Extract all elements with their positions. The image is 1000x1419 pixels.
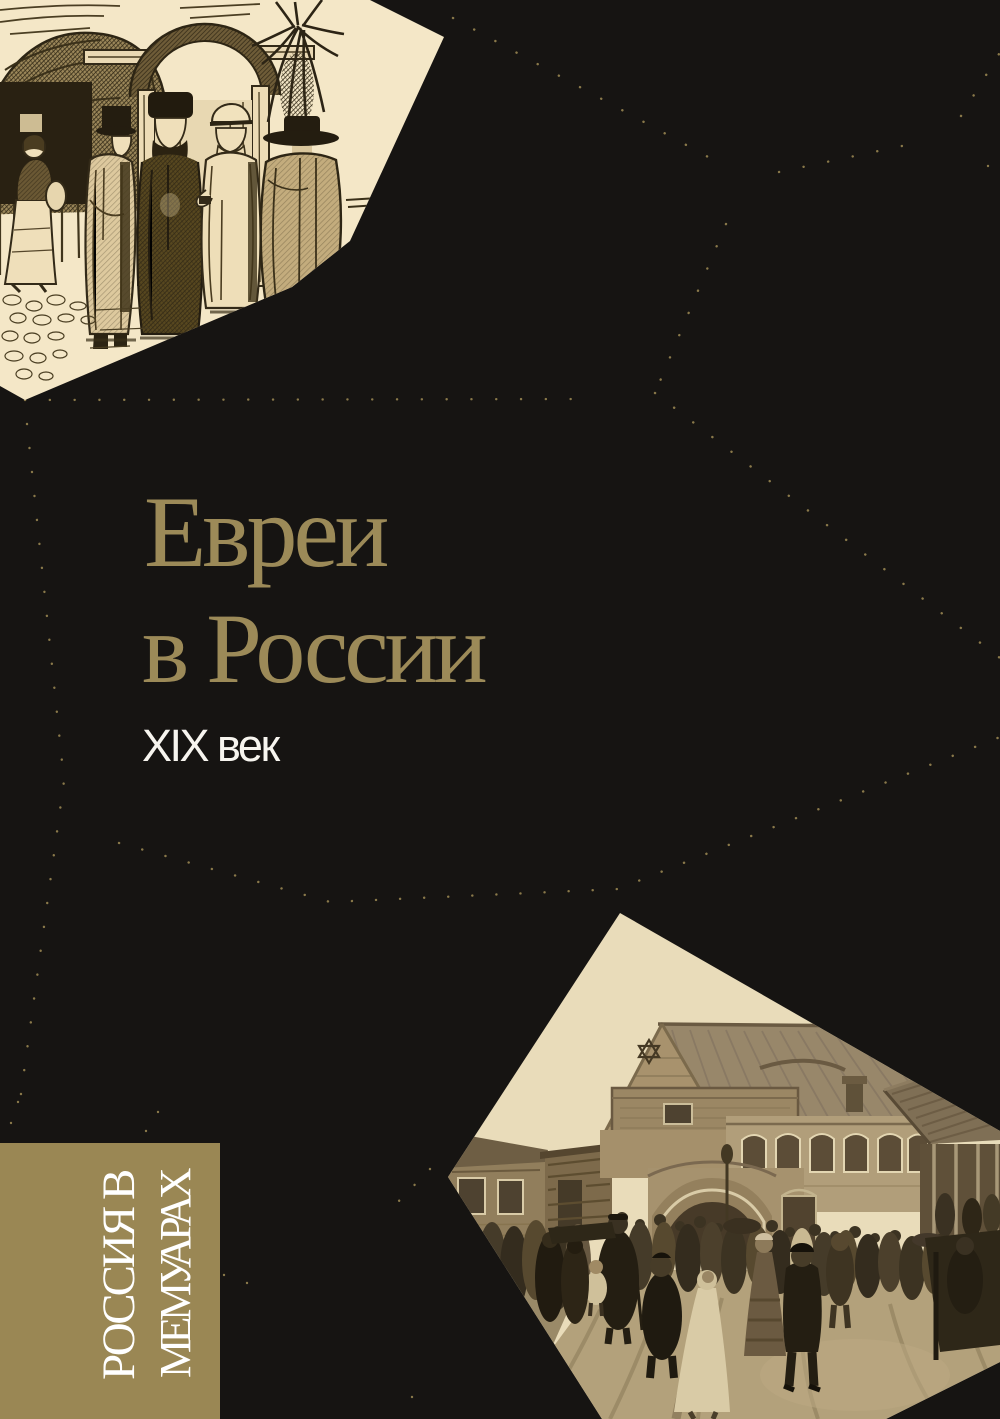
svg-text:Евреи: Евреи xyxy=(144,476,388,589)
svg-text:в России: в России xyxy=(142,593,486,704)
svg-text:МЕМУАРАХ: МЕМУАРАХ xyxy=(151,1168,200,1378)
svg-text:XIX век: XIX век xyxy=(142,720,280,771)
svg-text:РОССИЯ В: РОССИЯ В xyxy=(93,1170,145,1380)
